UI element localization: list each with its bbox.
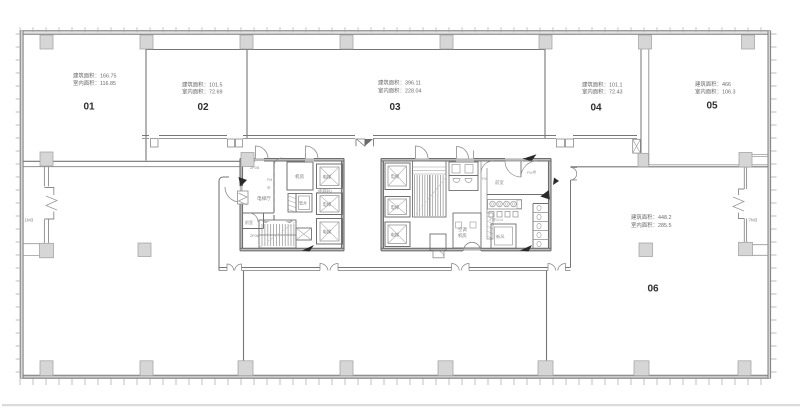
svg-text:电梯: 电梯 (323, 201, 332, 208)
svg-text:机房: 机房 (458, 232, 467, 239)
svg-text:电梯: 电梯 (391, 232, 400, 239)
svg-text:04: 04 (590, 103, 602, 114)
svg-text:小便斗×4: 小便斗×4 (489, 217, 503, 222)
svg-text:室内面积：228.04: 室内面积：228.04 (378, 87, 421, 95)
svg-text:室内面积：285.5: 室内面积：285.5 (631, 221, 671, 229)
svg-text:06: 06 (647, 284, 659, 295)
svg-text:建筑面积：448.2: 建筑面积：448.2 (631, 213, 671, 221)
svg-text:建筑面积：166.75: 建筑面积：166.75 (73, 72, 116, 80)
svg-text:电梯: 电梯 (391, 204, 400, 211)
svg-text:新风: 新风 (496, 233, 505, 240)
svg-text:室内面积：72.43: 室内面积：72.43 (582, 88, 622, 96)
svg-text:室内面积：116.85: 室内面积：116.85 (73, 79, 116, 87)
svg-text:空调: 空调 (458, 226, 467, 233)
svg-text:甲: 甲 (267, 185, 271, 190)
svg-text:02: 02 (197, 102, 209, 113)
svg-text:前室: 前室 (495, 179, 504, 186)
svg-text:室内面积：106.3: 室内面积：106.3 (695, 88, 735, 96)
svg-text:01: 01 (83, 102, 95, 113)
svg-text:前室: 前室 (245, 219, 253, 225)
svg-text:7M3: 7M3 (749, 218, 758, 223)
svg-text:2F06: 2F06 (250, 234, 259, 238)
svg-text:机房: 机房 (295, 173, 305, 180)
svg-text:电梯: 电梯 (323, 174, 332, 181)
svg-text:05: 05 (706, 101, 718, 112)
svg-text:管井: 管井 (299, 200, 307, 206)
svg-text:FM: FM (267, 178, 272, 182)
svg-text:电梯: 电梯 (323, 229, 332, 236)
svg-text:建筑面积：396.11: 建筑面积：396.11 (378, 79, 421, 87)
svg-text:电梯: 电梯 (391, 173, 400, 180)
svg-text:FM甲: FM甲 (527, 170, 536, 175)
svg-text:室内面积：72.69: 室内面积：72.69 (182, 88, 222, 96)
svg-text:FM: FM (482, 177, 487, 181)
svg-text:建筑面积：466: 建筑面积：466 (695, 80, 731, 88)
svg-text:电梯厅: 电梯厅 (257, 195, 271, 202)
svg-text:1M3: 1M3 (25, 218, 34, 223)
svg-text:03: 03 (389, 102, 401, 113)
svg-text:建筑面积：101.1: 建筑面积：101.1 (582, 81, 622, 89)
svg-text:建筑面积：101.5: 建筑面积：101.5 (182, 81, 222, 89)
